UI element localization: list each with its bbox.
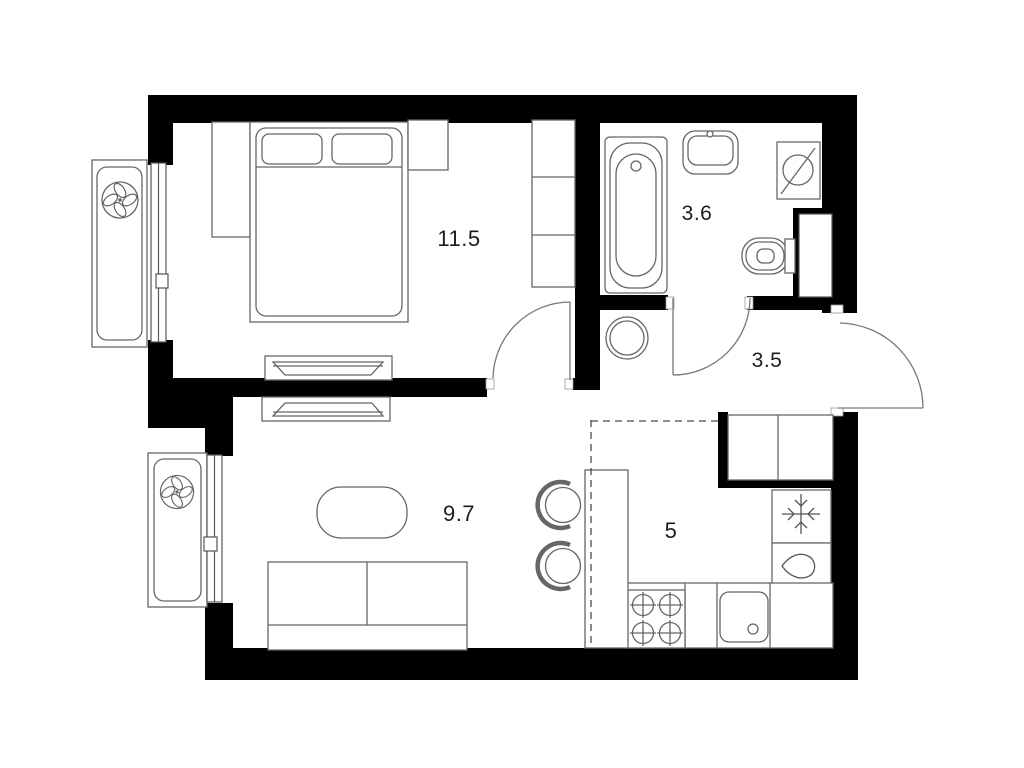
bedroom-furniture — [212, 120, 575, 322]
doors — [493, 298, 923, 408]
floor-plan-drawing — [0, 0, 1024, 768]
room-area-label-bedroom: 11.5 — [437, 226, 480, 252]
dresser — [212, 122, 250, 237]
room-area-label-living-room: 9.7 — [443, 501, 475, 527]
washbasin — [683, 131, 738, 174]
washing-machine — [606, 317, 648, 359]
window-bedroom — [151, 163, 168, 342]
duct-shaft — [799, 214, 832, 297]
chair — [538, 482, 581, 528]
kitchen-sink — [720, 592, 768, 642]
kitchen-fixtures — [538, 415, 833, 648]
floor-plan: 11.5 3.6 3.5 9.7 5 — [0, 0, 1024, 768]
coffee-table — [317, 487, 407, 538]
toilet — [742, 238, 795, 274]
door-bathroom — [673, 298, 750, 375]
nightstand — [408, 120, 448, 170]
window-living — [204, 455, 222, 602]
room-area-label-kitchen: 5 — [665, 518, 678, 544]
bathtub — [605, 137, 667, 293]
bathroom-fixtures — [605, 131, 820, 359]
room-area-label-bathroom: 3.6 — [682, 202, 713, 226]
pillow — [332, 134, 392, 164]
door-bedroom — [493, 302, 570, 380]
water-heater-box — [777, 142, 820, 199]
niche-counter — [728, 415, 833, 480]
entrance-door — [838, 323, 923, 408]
room-area-label-hallway: 3.5 — [752, 349, 783, 373]
pillow — [262, 134, 322, 164]
stove-burners — [627, 590, 685, 648]
fan-icon — [160, 475, 194, 509]
fan-icon — [101, 181, 138, 218]
living-furniture — [268, 487, 467, 650]
chair — [538, 543, 581, 589]
wardrobe — [532, 120, 575, 287]
door-frames — [486, 297, 843, 416]
tv-unit-living — [262, 397, 390, 421]
tv-unit-bedroom — [265, 356, 392, 380]
